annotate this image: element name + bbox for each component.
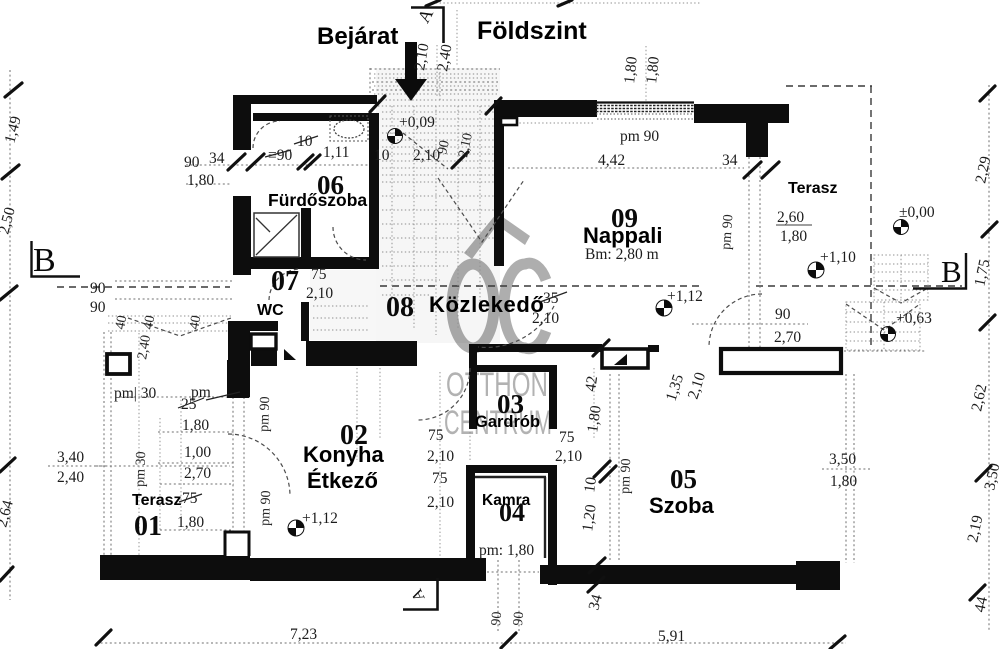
svg-text:pm| 30: pm| 30 <box>114 385 157 402</box>
svg-text:75: 75 <box>559 429 575 446</box>
svg-text:42: 42 <box>582 375 601 393</box>
svg-text:pm 30: pm 30 <box>133 451 149 487</box>
svg-text:±0,00: ±0,00 <box>899 204 935 221</box>
svg-text:2,10: 2,10 <box>532 310 559 327</box>
svg-text:40: 40 <box>141 314 158 330</box>
svg-text:75: 75 <box>432 470 448 487</box>
svg-text:1,00: 1,00 <box>184 444 211 461</box>
svg-text:75: 75 <box>311 266 327 283</box>
svg-text:Gardrób: Gardrób <box>475 413 540 431</box>
svg-text:1,80: 1,80 <box>621 55 641 84</box>
svg-text:2,10: 2,10 <box>427 494 454 511</box>
svg-text:01: 01 <box>134 511 162 542</box>
svg-text:Étkező: Étkező <box>307 468 378 493</box>
svg-text:Közlekedő: Közlekedő <box>429 292 544 317</box>
svg-text:1,80: 1,80 <box>187 172 214 189</box>
svg-text:40: 40 <box>113 314 130 330</box>
svg-text:10: 10 <box>374 147 390 164</box>
svg-text:90: 90 <box>90 280 106 297</box>
svg-text:1,80: 1,80 <box>643 55 663 84</box>
svg-text:1,80: 1,80 <box>780 228 807 245</box>
svg-text:+0,09: +0,09 <box>399 114 435 131</box>
svg-text:+0,63: +0,63 <box>896 310 932 327</box>
svg-text:1,80: 1,80 <box>182 417 209 434</box>
svg-text:Földszint: Földszint <box>477 17 587 45</box>
svg-text:Szoba: Szoba <box>649 493 715 518</box>
svg-text:90: 90 <box>184 154 200 171</box>
svg-text:pm 90: pm 90 <box>258 490 274 526</box>
svg-text:4,42: 4,42 <box>598 152 625 169</box>
svg-text:2,40: 2,40 <box>57 469 84 486</box>
svg-text:1,11: 1,11 <box>323 144 350 161</box>
svg-text:75: 75 <box>428 427 444 444</box>
svg-text:Fürdőszoba: Fürdőszoba <box>268 190 367 210</box>
svg-text:2,60: 2,60 <box>777 209 804 226</box>
svg-text:04: 04 <box>499 498 525 527</box>
svg-text:pm 90: pm 90 <box>719 214 736 250</box>
svg-text:5,91: 5,91 <box>658 628 685 645</box>
svg-text:2,10: 2,10 <box>427 448 454 465</box>
svg-text:pm 90: pm 90 <box>618 458 634 494</box>
svg-text:10: 10 <box>297 133 313 150</box>
svg-text:08: 08 <box>386 292 414 323</box>
svg-text:pm 90: pm 90 <box>257 396 273 432</box>
svg-text:1,80: 1,80 <box>830 473 857 490</box>
svg-text:Konyha: Konyha <box>303 442 384 467</box>
svg-text:90: 90 <box>775 306 791 323</box>
svg-text:WC: WC <box>257 302 284 319</box>
svg-text:2,70: 2,70 <box>184 465 211 482</box>
svg-text:25: 25 <box>181 396 197 413</box>
svg-text:Terasz: Terasz <box>788 180 838 197</box>
svg-text:B: B <box>941 254 962 289</box>
svg-text:+1,12: +1,12 <box>667 288 703 305</box>
svg-text:10: 10 <box>581 476 600 494</box>
svg-text:90: 90 <box>489 611 505 626</box>
svg-text:34: 34 <box>209 150 225 167</box>
svg-text:90: 90 <box>90 299 106 316</box>
svg-text:2,10: 2,10 <box>306 285 333 302</box>
svg-text:B: B <box>33 242 56 279</box>
svg-text:pm: 1,80: pm: 1,80 <box>479 542 534 559</box>
svg-text:3,50: 3,50 <box>829 451 856 468</box>
svg-text:2,10: 2,10 <box>555 448 582 465</box>
svg-text:pm 90: pm 90 <box>620 128 659 145</box>
svg-text:+1,12: +1,12 <box>302 510 338 527</box>
svg-text:Bm: 2,80 m: Bm: 2,80 m <box>585 246 659 263</box>
svg-text:07: 07 <box>271 266 299 297</box>
svg-text:7,23: 7,23 <box>290 626 317 643</box>
svg-text:Bejárat: Bejárat <box>317 23 398 50</box>
svg-text:1,80: 1,80 <box>177 514 204 531</box>
svg-text:34: 34 <box>722 152 738 169</box>
svg-text:2,70: 2,70 <box>774 329 801 346</box>
svg-text:3,40: 3,40 <box>57 449 84 466</box>
svg-text:90: 90 <box>511 611 527 626</box>
svg-text:05: 05 <box>670 464 697 494</box>
svg-text:40: 40 <box>187 314 204 330</box>
svg-text:Nappali: Nappali <box>583 223 662 248</box>
svg-text:Terasz: Terasz <box>132 492 182 509</box>
svg-text:+1,10: +1,10 <box>820 249 856 266</box>
